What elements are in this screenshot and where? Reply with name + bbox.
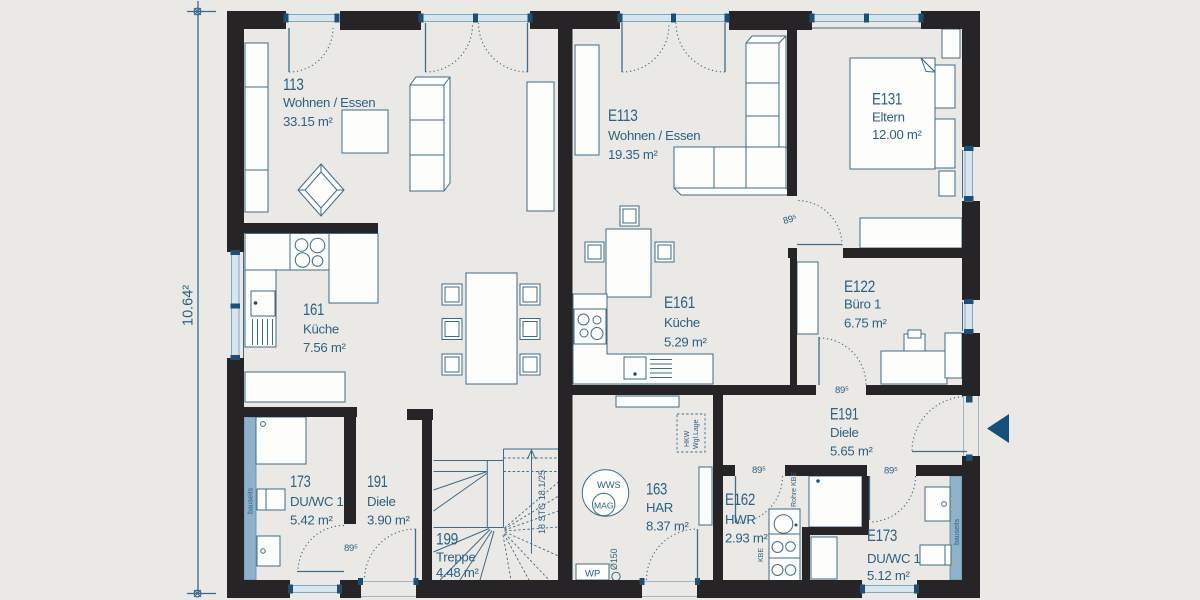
svg-text:Wgl.Lage: Wgl.Lage [693,419,700,449]
svg-text:WWS: WWS [597,480,621,490]
svg-text:E131: E131 [872,91,902,109]
svg-text:89⁵: 89⁵ [344,543,358,554]
svg-text:Büro 1: Büro 1 [844,297,881,312]
svg-text:Wohnen / Essen: Wohnen / Essen [283,95,375,110]
svg-text:E173: E173 [867,527,897,545]
svg-text:Diele: Diele [830,425,859,440]
svg-text:E191: E191 [830,406,859,424]
svg-text:33.15 m²: 33.15 m² [283,114,334,129]
svg-text:89⁵: 89⁵ [752,465,766,476]
svg-text:6.75 m²: 6.75 m² [844,316,888,331]
svg-text:WP: WP [585,569,600,580]
svg-text:10.64²: 10.64² [181,285,197,326]
svg-text:Küche: Küche [303,322,339,337]
svg-text:161: 161 [303,301,324,319]
svg-text:113: 113 [283,76,304,94]
svg-text:8.37 m²: 8.37 m² [646,519,690,534]
svg-text:Wohnen / Essen: Wohnen / Essen [608,128,700,143]
svg-text:199: 199 [436,531,458,549]
svg-text:3.90 m²: 3.90 m² [367,513,411,528]
svg-text:163: 163 [646,481,667,499]
svg-text:4.48 m²: 4.48 m² [436,565,480,580]
svg-text:7.56 m²: 7.56 m² [303,340,347,355]
svg-text:MAG: MAG [594,501,614,511]
svg-text:89⁵: 89⁵ [884,466,898,477]
svg-text:E122: E122 [844,278,875,296]
svg-text:E161: E161 [664,294,695,312]
svg-text:Ø150: Ø150 [609,548,619,570]
svg-text:Küche: Küche [664,315,700,330]
svg-text:Diele: Diele [367,494,396,509]
svg-text:5.65 m²: 5.65 m² [830,444,874,459]
svg-text:E113: E113 [608,107,638,125]
svg-text:5.12 m²: 5.12 m² [867,568,911,583]
svg-text:Treppe: Treppe [436,550,476,565]
svg-text:89⁵: 89⁵ [835,385,849,396]
svg-text:HWR: HWR [725,512,756,527]
svg-text:12.00 m²: 12.00 m² [872,127,923,142]
svg-text:191: 191 [367,473,388,491]
svg-text:Eltern: Eltern [872,110,905,125]
svg-text:KBE: KBE [758,548,765,562]
svg-text:19.35 m²: 19.35 m² [608,147,659,162]
svg-text:18 STG 18.1/25: 18 STG 18.1/25 [537,470,547,534]
svg-text:Rohre KBE: Rohre KBE [791,472,798,507]
svg-text:bauseits: bauseits [954,518,961,545]
svg-text:DU/WC 1: DU/WC 1 [867,551,921,566]
svg-text:HAR: HAR [646,500,673,515]
svg-text:DU/WC 1: DU/WC 1 [290,494,344,509]
svg-text:HKW: HKW [684,430,691,447]
svg-text:173: 173 [290,473,311,491]
svg-text:bauseits: bauseits [248,487,255,514]
svg-text:E162: E162 [725,491,755,509]
svg-text:5.42 m²: 5.42 m² [290,513,334,528]
svg-text:2.93 m²: 2.93 m² [725,531,769,546]
svg-text:5.29 m²: 5.29 m² [664,335,708,350]
